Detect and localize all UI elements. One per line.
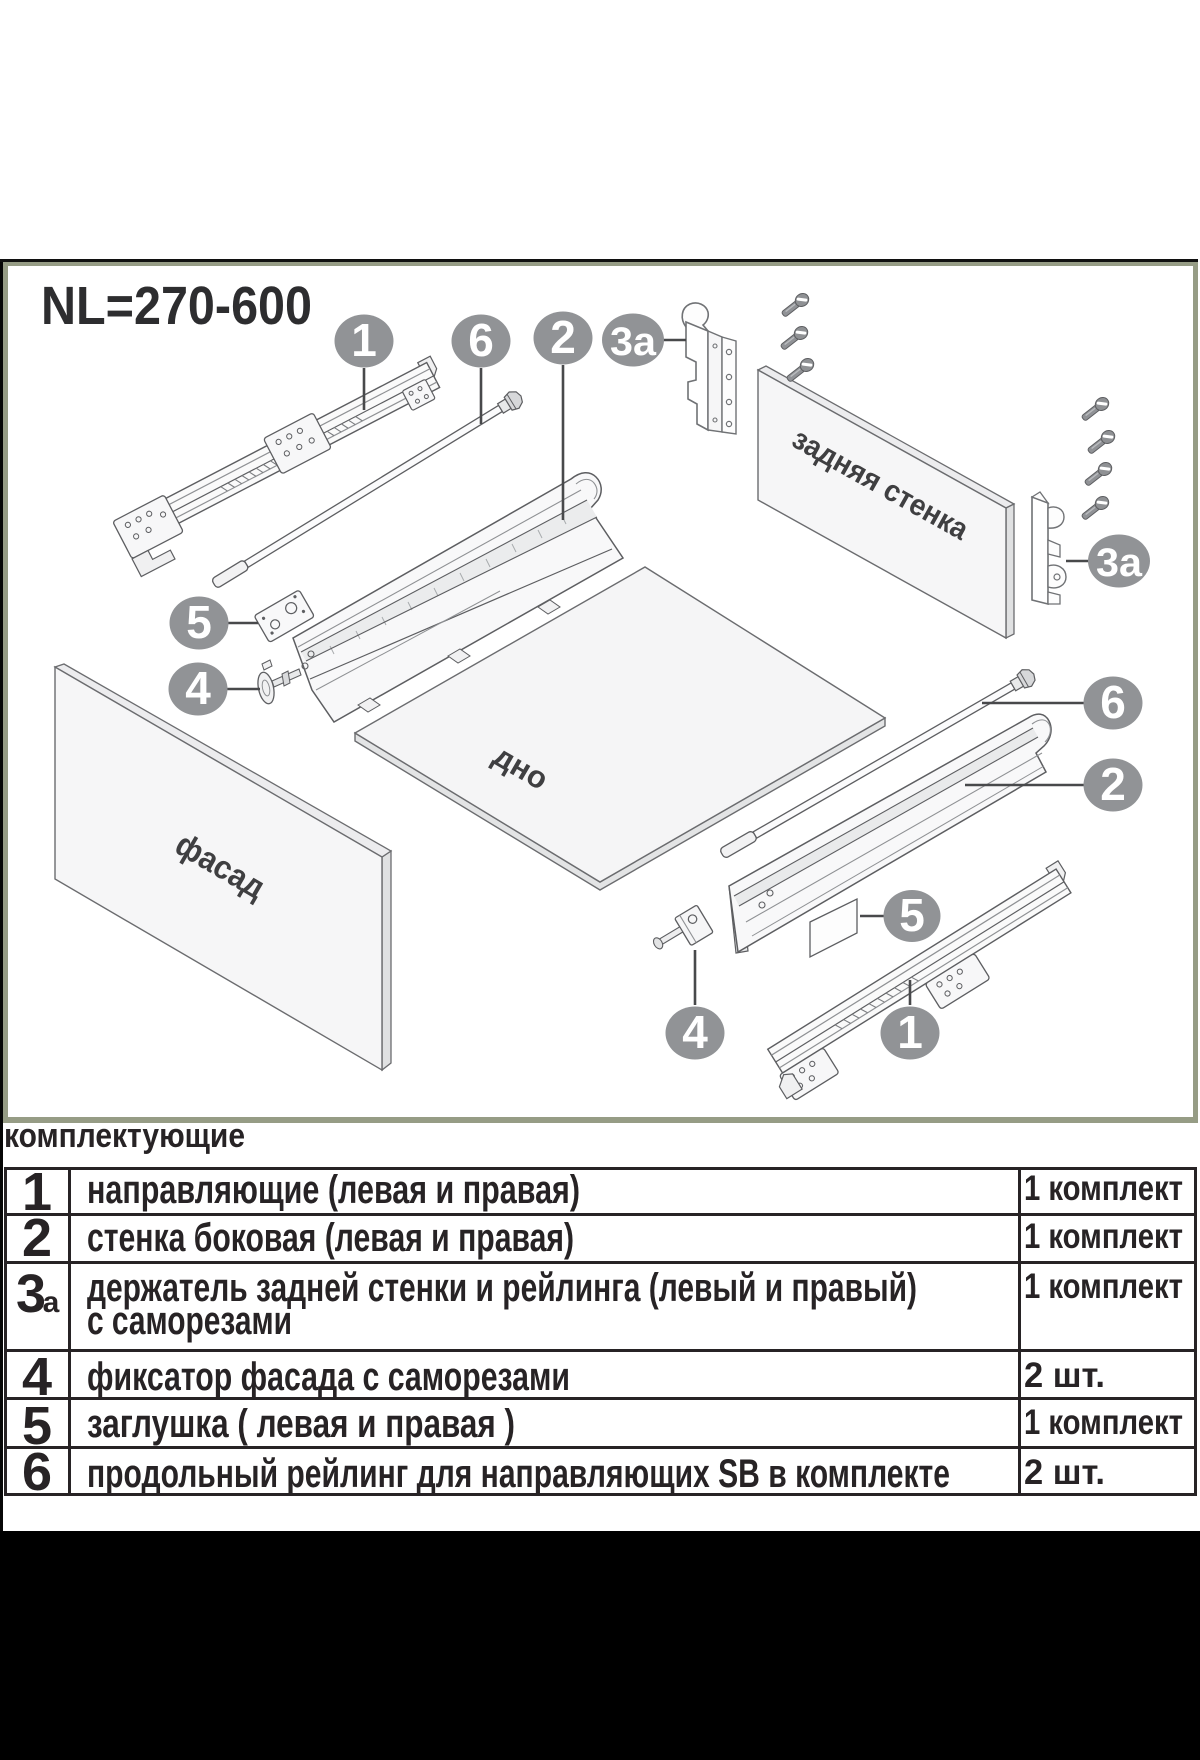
svg-text:NL=270-600: NL=270-600: [41, 276, 312, 336]
svg-text:6: 6: [468, 314, 494, 366]
svg-text:2: 2: [1100, 758, 1126, 810]
svg-text:направляющие (левая и правая): направляющие (левая и правая): [87, 1168, 580, 1212]
svg-text:6: 6: [1100, 676, 1126, 728]
svg-text:2: 2: [22, 1208, 52, 1268]
svg-text:1 комплект: 1 комплект: [1024, 1169, 1183, 1208]
svg-text:3: 3: [16, 1264, 46, 1324]
svg-text:5: 5: [186, 596, 212, 648]
svg-text:1 комплект: 1 комплект: [1024, 1403, 1183, 1442]
svg-text:2 шт.: 2 шт.: [1024, 1453, 1105, 1492]
svg-text:с саморезами: с саморезами: [87, 1299, 292, 1343]
svg-text:а: а: [43, 1286, 60, 1319]
svg-text:стенка боковая (левая и правая: стенка боковая (левая и правая): [87, 1216, 574, 1260]
svg-text:фиксатор фасада с саморезами: фиксатор фасада с саморезами: [87, 1355, 570, 1399]
svg-text:1: 1: [897, 1006, 923, 1058]
svg-text:продольный рейлинг для направл: продольный рейлинг для направляющих SB в…: [87, 1452, 950, 1496]
svg-text:3а: 3а: [610, 320, 657, 364]
svg-text:1 комплект: 1 комплект: [1024, 1267, 1183, 1306]
svg-text:5: 5: [899, 889, 925, 941]
svg-text:1 комплект: 1 комплект: [1024, 1217, 1183, 1256]
svg-text:1: 1: [351, 314, 377, 366]
svg-text:2 шт.: 2 шт.: [1024, 1356, 1105, 1395]
svg-text:2: 2: [550, 311, 576, 363]
svg-text:4: 4: [682, 1006, 708, 1058]
svg-text:4: 4: [185, 662, 211, 714]
svg-text:комплектующие: комплектующие: [4, 1117, 245, 1155]
svg-text:3а: 3а: [1096, 541, 1143, 585]
svg-text:заглушка ( левая и правая ): заглушка ( левая и правая ): [87, 1402, 515, 1446]
